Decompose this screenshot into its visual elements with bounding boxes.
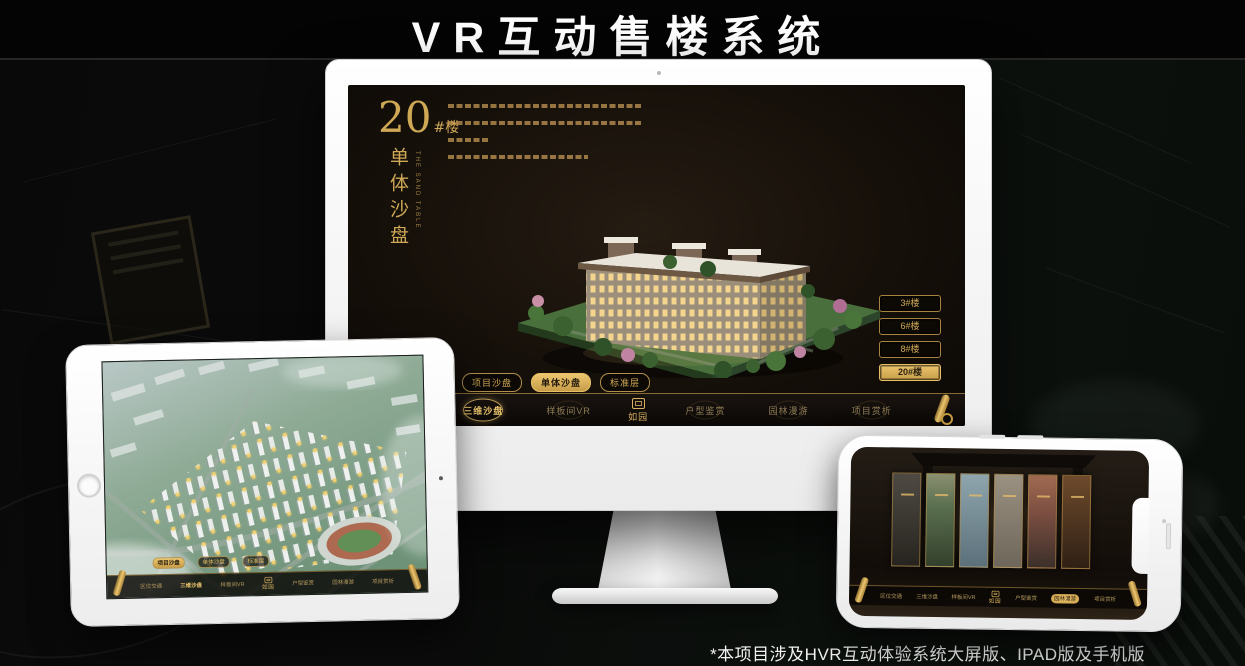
logo-emblem-icon <box>992 590 1000 596</box>
monitor-stand-base <box>552 588 778 604</box>
scroll-ornament-icon <box>854 577 869 604</box>
floor-button-20[interactable]: 20#楼 <box>879 364 941 381</box>
nav-item-showroom-vr[interactable]: 样板间VR <box>540 400 597 421</box>
tablet-nav-item-location[interactable]: 区位交通 <box>140 582 162 590</box>
phone-nav-item-location[interactable]: 区位交通 <box>880 592 902 600</box>
unit-description-lines <box>448 104 643 172</box>
nav-item-floorplans[interactable]: 户型鉴赏 <box>679 400 731 421</box>
bg-photo-frame <box>91 215 210 345</box>
phone-speaker-icon <box>1166 523 1171 549</box>
tab-project-sandtable[interactable]: 项目沙盘 <box>462 373 522 392</box>
tab-standard-floor[interactable]: 标准层 <box>600 373 650 392</box>
tablet-brand-logo[interactable]: 如园 <box>262 577 275 591</box>
bg-map-line <box>24 119 277 183</box>
unit-title: 20#楼 <box>378 97 459 139</box>
tablet-nav-item-garden-roam[interactable]: 园林漫游 <box>332 578 354 586</box>
gallery-panel[interactable] <box>925 473 955 567</box>
tab-single-sandtable[interactable]: 单体沙盘 <box>531 373 591 392</box>
floor-button-3[interactable]: 3#楼 <box>879 295 941 312</box>
scroll-menu-icon[interactable] <box>929 395 953 425</box>
brand-logo[interactable]: 如园 <box>628 398 648 423</box>
monitor-camera-icon <box>657 71 661 75</box>
phone: 区位交通 三维沙盘 样板间VR 如园 户型鉴赏 园林漫游 项目赏析 <box>836 435 1184 633</box>
monitor-stand-neck <box>598 508 731 590</box>
sub-tab-group: 项目沙盘 单体沙盘 标准层 <box>462 373 650 392</box>
tablet-sub-tab-group: 项目沙盘 单体沙盘 标准层 <box>153 554 276 571</box>
phone-gate-roof <box>911 453 1096 469</box>
logo-text: 如园 <box>628 410 648 423</box>
phone-nav-item-3d-sandtable[interactable]: 三维沙盘 <box>916 592 938 600</box>
tablet-camera-icon <box>439 476 443 480</box>
phone-nav-item-garden-roam[interactable]: 园林漫游 <box>1051 593 1079 603</box>
nav-item-project-gallery[interactable]: 项目赏析 <box>846 400 898 421</box>
phone-volume-button <box>1017 435 1043 439</box>
tablet-home-button[interactable] <box>77 473 101 497</box>
nav-item-3d-sandtable[interactable]: 三维沙盘 <box>457 400 509 421</box>
tablet: 项目沙盘 单体沙盘 标准层 区位交通 三维沙盘 样板间VR 如园 户型鉴赏 园林… <box>65 337 460 627</box>
phone-camera-icon <box>1162 519 1166 523</box>
stage: VR互动售楼系统 20#楼 单体沙盘 THE SAND TABLE <box>0 0 1245 666</box>
bg-map-line <box>1020 133 1231 227</box>
footnote: *本项目涉及HVR互动体验系统大屏版、IPAD版及手机版 <box>710 640 1145 665</box>
tablet-nav-item-floorplans[interactable]: 户型鉴赏 <box>292 579 314 587</box>
logo-emblem-icon <box>632 398 645 409</box>
phone-nav-item-project-gallery[interactable]: 项目赏析 <box>1094 595 1116 603</box>
sand-table-3d-view[interactable] <box>508 163 888 378</box>
unit-subtitle-en: THE SAND TABLE <box>414 151 420 229</box>
phone-volume-button <box>979 435 1005 439</box>
phone-screen: 区位交通 三维沙盘 样板间VR 如园 户型鉴赏 园林漫游 项目赏析 <box>849 447 1149 620</box>
gallery-panel[interactable] <box>1027 474 1057 568</box>
unit-subtitle: 单体沙盘 <box>385 147 412 251</box>
gallery-panel-row <box>891 472 1091 569</box>
tablet-nav-item-3d-sandtable[interactable]: 三维沙盘 <box>180 581 202 589</box>
page-title: VR互动售楼系统 <box>0 3 1245 65</box>
phone-main-nav: 区位交通 三维沙盘 样板间VR 如园 户型鉴赏 园林漫游 项目赏析 <box>849 585 1147 609</box>
tablet-tab-project-sandtable[interactable]: 项目沙盘 <box>153 557 185 569</box>
gallery-panel[interactable] <box>959 473 989 567</box>
gallery-panel[interactable] <box>993 474 1023 568</box>
floor-button-6[interactable]: 6#楼 <box>879 318 941 335</box>
floor-button-8[interactable]: 8#楼 <box>879 341 941 358</box>
nav-item-garden-roam[interactable]: 园林漫游 <box>763 400 815 421</box>
phone-nav-item-showroom-vr[interactable]: 样板间VR <box>952 593 976 601</box>
phone-brand-logo[interactable]: 如园 <box>989 590 1002 604</box>
tablet-tab-single-sandtable[interactable]: 单体沙盘 <box>198 556 230 568</box>
phone-nav-item-floorplans[interactable]: 户型鉴赏 <box>1015 594 1037 602</box>
gallery-panel[interactable] <box>1061 475 1091 569</box>
floor-button-group: 3#楼 6#楼 8#楼 20#楼 <box>879 295 941 381</box>
logo-emblem-icon <box>264 577 272 583</box>
tablet-nav-item-project-gallery[interactable]: 项目赏析 <box>372 577 394 585</box>
tablet-screen: 项目沙盘 单体沙盘 标准层 区位交通 三维沙盘 样板间VR 如园 户型鉴赏 园林… <box>101 355 428 600</box>
phone-notch <box>1131 497 1149 573</box>
bg-map-line <box>1046 268 1225 334</box>
tablet-tab-standard-floor[interactable]: 标准层 <box>243 555 270 567</box>
scroll-ornament-icon <box>1127 580 1141 607</box>
tablet-nav-item-showroom-vr[interactable]: 样板间VR <box>220 581 244 589</box>
bg-map-line <box>999 77 1191 163</box>
gallery-panel[interactable] <box>891 472 921 566</box>
